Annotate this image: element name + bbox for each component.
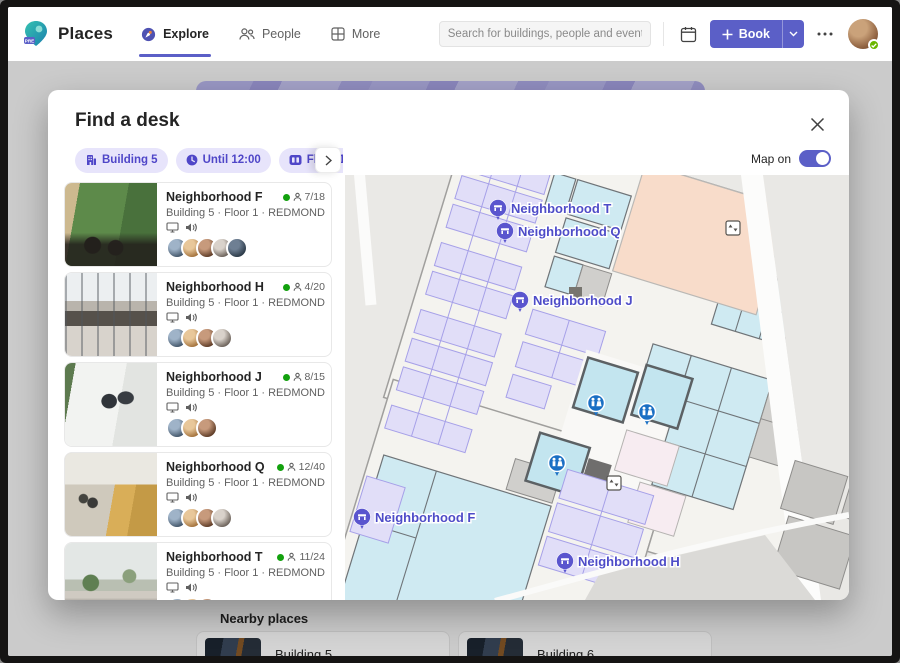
availability-dot-icon [283,374,290,381]
map-label: Neighborhood J [533,293,633,308]
neighborhood-photo [65,453,157,536]
floorplan-map[interactable]: Neighborhood T Neighborhood Q Neighborho… [345,175,849,600]
member-avatar [211,327,233,349]
neighborhood-location: Building 5 · Floor 1 · REDMOND [166,477,325,489]
plus-icon [722,29,733,40]
neighborhood-location: Building 5 · Floor 1 · REDMOND [166,297,325,309]
neighborhood-name: Neighborhood T [166,550,263,564]
search-input[interactable] [439,21,651,47]
occupancy-count: 8/15 [305,371,325,383]
neighborhood-location: Building 5 · Floor 1 · REDMOND [166,567,325,579]
neighborhood-card-f[interactable]: Neighborhood F 7/18 Building 5 · Floor 1… [64,182,332,267]
book-dropdown-button[interactable] [782,20,804,48]
person-count-icon [287,552,296,562]
neighborhood-location: Building 5 · Floor 1 · REDMOND [166,207,325,219]
map-toggle-group: Map on [751,150,831,167]
floor-icon [289,154,302,166]
monitor-icon [166,492,179,503]
pre-badge: PRE [25,38,34,43]
occupancy-count: 11/24 [299,551,325,563]
occupancy-count: 4/20 [305,281,325,293]
occupancy-count: 12/40 [299,461,325,473]
close-button[interactable] [805,112,829,136]
neighborhood-photo [65,183,157,266]
monitor-icon [166,222,179,233]
app-name: Places [58,24,113,44]
explore-icon [141,27,156,42]
chips-scroll-right-button[interactable] [315,147,341,173]
map-label: Neighborhood F [375,510,475,525]
occupancy-badge: 8/15 [283,371,325,383]
occupancy-badge: 12/40 [277,461,325,473]
book-button[interactable]: Book [710,20,782,48]
neighborhood-name: Neighborhood F [166,190,263,204]
neighborhood-photo [65,543,157,600]
amenity-icons [166,312,325,323]
neighborhood-location: Building 5 · Floor 1 · REDMOND [166,387,325,399]
monitor-icon [166,402,179,413]
occupancy-badge: 7/18 [283,191,325,203]
dialog-title: Find a desk [75,110,180,132]
tab-explore[interactable]: Explore [141,7,209,61]
chip-label: Until 12:00 [203,154,261,166]
building-icon [85,154,97,166]
neighborhood-card-q[interactable]: Neighborhood Q 12/40 Building 5 · Floor … [64,452,332,537]
calendar-icon [680,26,697,43]
person-count-icon [293,192,302,202]
ellipsis-icon [817,32,833,36]
chip-label: Building 5 [102,154,158,166]
app-logo: PRE Places [22,19,113,49]
user-avatar[interactable] [848,19,878,49]
presence-available-icon [868,39,880,51]
toggle-knob [816,152,829,165]
speaker-icon [185,402,197,413]
member-avatars [166,417,325,439]
neighborhood-name: Neighborhood J [166,370,262,384]
member-avatars [166,597,325,600]
filter-chip-row: Building 5 Until 12:00 Floor 1 [75,147,343,173]
map-label: Neighborhood Q [518,224,621,239]
elevator-icon [607,476,621,490]
availability-dot-icon [283,194,290,201]
screenshot-frame: Nearby places Building 5 Building 6 PRE [0,0,900,663]
neighborhood-name: Neighborhood H [166,280,264,294]
navbar-divider [663,22,664,46]
neighborhood-list: Neighborhood F 7/18 Building 5 · Floor 1… [64,182,332,600]
neighborhood-card-j[interactable]: Neighborhood J 8/15 Building 5 · Floor 1… [64,362,332,447]
member-avatars [166,327,325,349]
monitor-icon [166,312,179,323]
person-count-icon [287,462,296,472]
clock-icon [186,154,198,166]
neighborhood-card-t[interactable]: Neighborhood T 11/24 Building 5 · Floor … [64,542,332,600]
map-label: Neighborhood H [578,554,680,569]
people-icon [239,27,255,41]
book-split-button: Book [710,20,804,48]
more-options-button[interactable] [810,19,840,49]
neighborhood-card-h[interactable]: Neighborhood H 4/20 Building 5 · Floor 1… [64,272,332,357]
speaker-icon [185,222,197,233]
calendar-button[interactable] [674,19,704,49]
amenity-icons [166,222,325,233]
chevron-down-icon [789,31,798,37]
availability-dot-icon [277,554,284,561]
neighborhood-photo [65,273,157,356]
availability-dot-icon [283,284,290,291]
tab-more[interactable]: More [331,7,380,61]
places-pin-icon: PRE [22,19,50,49]
occupancy-badge: 11/24 [277,551,325,563]
filter-chip-time[interactable]: Until 12:00 [176,148,271,173]
map-toggle[interactable] [799,150,831,167]
person-count-icon [293,282,302,292]
monitor-icon [166,582,179,593]
neighborhood-name: Neighborhood Q [166,460,265,474]
neighborhood-photo [65,363,157,446]
tab-label: More [352,27,380,41]
person-count-icon [293,372,302,382]
amenity-icons [166,492,325,503]
speaker-icon [185,582,197,593]
chevron-right-icon [325,155,332,166]
member-avatars [166,507,325,529]
tab-label: People [262,27,301,41]
top-navbar: PRE Places Explore People More [8,7,892,61]
grid-icon [331,27,345,41]
filter-chip-building[interactable]: Building 5 [75,148,168,173]
book-label: Book [739,27,770,41]
speaker-icon [185,312,197,323]
member-avatar [226,237,248,259]
tab-people[interactable]: People [239,7,301,61]
occupancy-badge: 4/20 [283,281,325,293]
close-icon [810,117,825,132]
places-app: Nearby places Building 5 Building 6 PRE [8,7,892,656]
member-avatar [211,507,233,529]
find-a-desk-dialog: Find a desk Building 5 Until 12:0 [48,90,849,600]
amenity-icons [166,402,325,413]
map-toggle-label: Map on [751,152,791,166]
map-label: Neighborhood T [511,201,611,216]
elevator-icon [726,221,740,235]
member-avatars [166,237,325,259]
member-avatar [196,597,218,600]
amenity-icons [166,582,325,593]
occupancy-count: 7/18 [305,191,325,203]
speaker-icon [185,492,197,503]
floorplan-canvas: Neighborhood T Neighborhood Q Neighborho… [345,175,849,600]
tab-label: Explore [163,27,209,41]
member-avatar [196,417,218,439]
availability-dot-icon [277,464,284,471]
